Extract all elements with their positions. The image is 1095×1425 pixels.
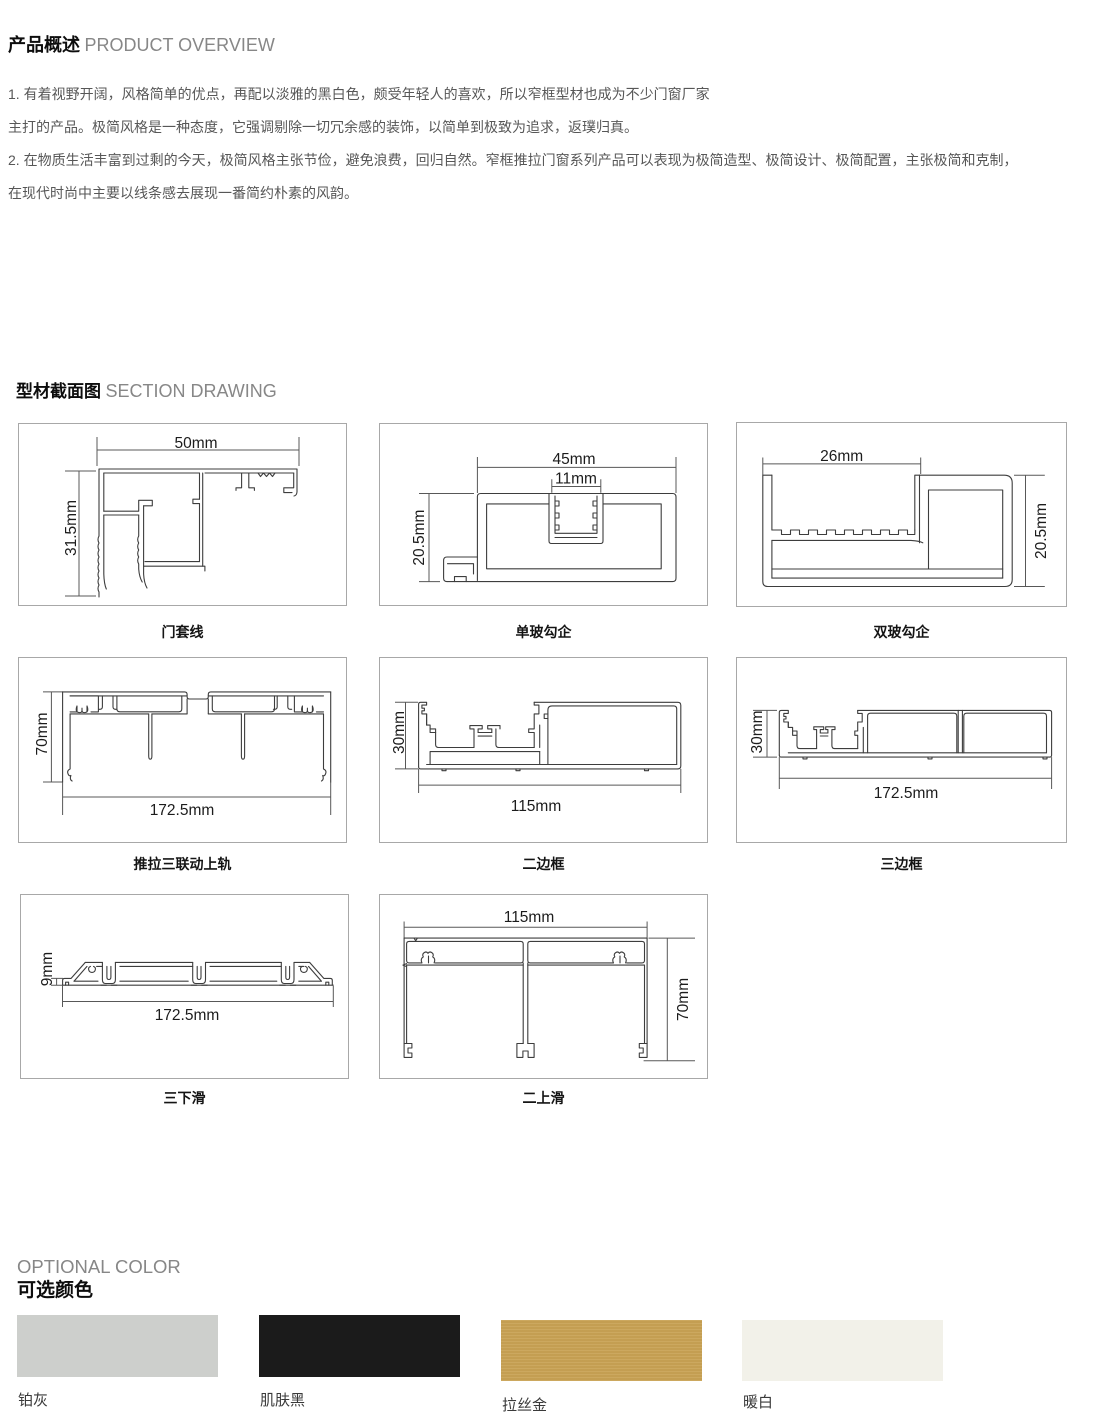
svg-text:11mm: 11mm (555, 471, 597, 488)
svg-text:30mm: 30mm (749, 710, 766, 753)
svg-text:26mm: 26mm (820, 448, 863, 465)
svg-text:31.5mm: 31.5mm (63, 500, 80, 556)
svg-text:9mm: 9mm (39, 952, 56, 986)
svg-text:20.5mm: 20.5mm (411, 510, 428, 566)
svg-text:70mm: 70mm (675, 978, 692, 1021)
svg-text:115mm: 115mm (504, 909, 555, 926)
svg-text:172.5mm: 172.5mm (874, 785, 939, 802)
svg-text:20.5mm: 20.5mm (1033, 503, 1050, 559)
svg-text:50mm: 50mm (174, 435, 217, 452)
svg-text:172.5mm: 172.5mm (155, 1007, 220, 1024)
svg-text:30mm: 30mm (391, 711, 408, 754)
svg-text:45mm: 45mm (552, 451, 595, 468)
svg-text:115mm: 115mm (511, 798, 562, 815)
svg-text:70mm: 70mm (34, 712, 51, 755)
svg-text:172.5mm: 172.5mm (150, 802, 215, 819)
